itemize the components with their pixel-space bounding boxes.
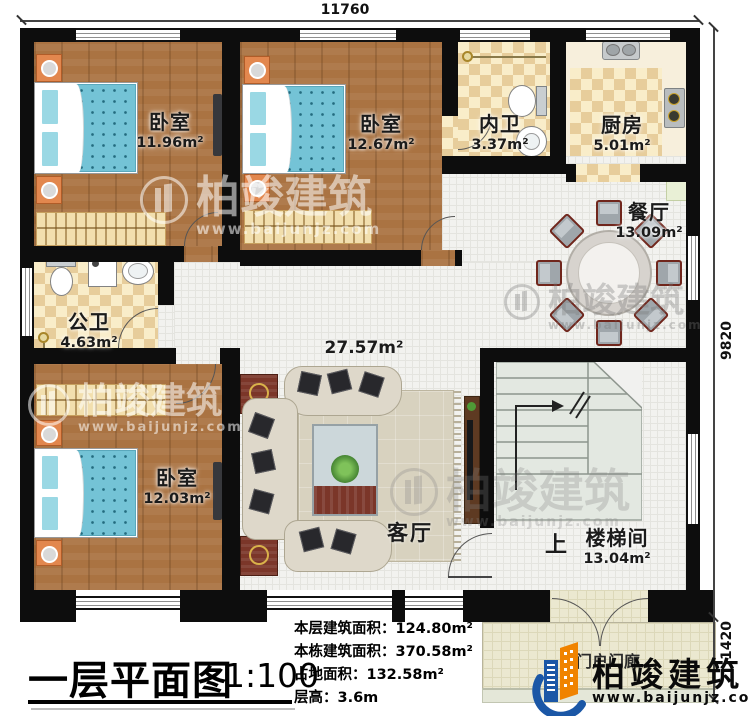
toilet <box>50 267 73 296</box>
window <box>686 434 700 524</box>
room-label-dining: 餐厅 13.09m² <box>615 196 682 241</box>
burner <box>668 110 680 122</box>
threshold-bedroom-tm <box>421 250 455 266</box>
title-underline-2 <box>31 708 295 710</box>
room-name: 公卫 <box>68 306 110 335</box>
dimension-line-top <box>20 20 700 22</box>
room-name: 餐厅 <box>628 196 670 225</box>
pillow <box>248 90 268 127</box>
dimension-top-value: 11760 <box>300 2 390 18</box>
room-area: 5.01m² <box>593 138 650 154</box>
wall <box>20 336 34 622</box>
coffee-table-wood <box>314 486 376 514</box>
wall <box>20 28 34 268</box>
wall <box>686 28 700 236</box>
dining-table-top <box>578 242 640 304</box>
room-label-stairwell: 楼梯间 13.04m² <box>583 522 650 567</box>
wall <box>218 246 240 262</box>
wall <box>455 250 462 266</box>
stat-line: 本栋建筑面积：370.58m² <box>294 641 473 664</box>
threshold-public-bath <box>158 305 174 348</box>
wall <box>566 164 576 182</box>
sink-bowl <box>622 44 636 56</box>
tv-screen <box>467 420 473 500</box>
window <box>76 596 180 610</box>
wall <box>222 28 240 250</box>
brand-website: www.baijunjz.com <box>592 690 750 706</box>
tv-panel <box>213 462 222 520</box>
window <box>586 28 670 42</box>
wall <box>640 164 686 182</box>
sofa-top <box>284 366 402 416</box>
room-name: 内卫 <box>479 108 521 137</box>
threshold-kitchen <box>576 164 640 182</box>
toilet-tank <box>536 86 547 116</box>
wall <box>480 362 494 528</box>
stairs-up-label: 上 <box>545 527 567 559</box>
nightstand <box>36 54 62 82</box>
wall <box>463 590 550 622</box>
dining-chair <box>536 260 562 286</box>
dimension-line-right <box>713 28 715 702</box>
wall <box>648 590 714 622</box>
wall <box>442 28 458 116</box>
brand-name: 柏竣建筑 <box>592 648 744 696</box>
bed-sheet <box>266 86 292 172</box>
room-area: 4.63m² <box>60 335 117 351</box>
dining-chair <box>656 260 682 286</box>
threshold-inner-bath <box>442 116 458 156</box>
room-label-kitchen: 厨房 5.01m² <box>593 109 650 154</box>
room-label-bedroom-tl: 卧室 11.96m² <box>136 106 203 151</box>
dimension-right-main-value: 9820 <box>719 300 735 360</box>
wall <box>222 348 240 590</box>
wardrobe <box>36 212 166 246</box>
nightstand <box>244 174 270 202</box>
room-name: 厨房 <box>601 109 643 138</box>
room-name: 卧室 <box>156 462 198 491</box>
room-label-public-bath: 公卫 4.63m² <box>60 306 117 351</box>
pillow <box>40 495 60 532</box>
wardrobe <box>244 210 372 244</box>
nightstand <box>36 540 62 566</box>
room-label-inner-bath: 内卫 3.37m² <box>471 108 528 153</box>
stat-line: 占地面积：132.58m² <box>294 664 473 687</box>
stat-line: 层高：3.6m <box>294 687 473 710</box>
nightstand <box>36 420 62 446</box>
room-name: 楼梯间 <box>585 522 648 551</box>
window <box>76 28 180 42</box>
burner <box>668 93 680 105</box>
living-room-name: 客厅 <box>387 517 433 547</box>
sink-bowl <box>606 44 620 56</box>
room-label-bedroom-bl: 卧室 12.03m² <box>143 462 210 507</box>
window <box>405 596 463 610</box>
title-underline <box>28 700 292 704</box>
room-name: 卧室 <box>360 108 402 137</box>
plant-small <box>467 402 476 411</box>
window <box>300 28 396 42</box>
wall <box>480 348 686 362</box>
plant <box>331 455 359 483</box>
wall <box>180 590 267 622</box>
wall <box>686 300 700 434</box>
wall <box>158 246 174 305</box>
pillow <box>248 131 268 168</box>
area-stats: 本层建筑面积：124.80m² 本栋建筑面积：370.58m² 占地面积：132… <box>294 618 473 710</box>
chaise <box>284 520 392 572</box>
floor-plan: 柏竣建筑 www.baijunjz.com 柏竣建筑 www.baijunjz.… <box>0 0 750 728</box>
room-area: 12.67m² <box>347 137 414 153</box>
wall <box>240 250 421 266</box>
window <box>686 236 700 300</box>
wall <box>550 28 566 156</box>
dining-chair <box>596 320 622 346</box>
end-table <box>240 536 278 576</box>
room-area: 11.96m² <box>136 135 203 151</box>
tv-panel <box>213 94 222 156</box>
bed-sheet <box>58 450 84 536</box>
room-area: 13.04m² <box>583 551 650 567</box>
room-area: 12.03m² <box>143 491 210 507</box>
window <box>267 596 392 610</box>
wall <box>20 590 76 622</box>
nightstand <box>36 176 62 204</box>
floor-drain <box>38 332 49 343</box>
towel-bar <box>470 56 546 58</box>
plan-title: 一层平面图 <box>28 648 233 706</box>
window <box>460 28 530 42</box>
wall <box>180 28 300 42</box>
bed-sheet <box>58 84 84 172</box>
room-name: 卧室 <box>149 106 191 135</box>
sink-basin <box>128 263 148 279</box>
pillow <box>40 130 60 168</box>
sofa-left <box>242 398 298 540</box>
brand-logo-icon <box>532 638 590 716</box>
room-area: 13.09m² <box>615 225 682 241</box>
wardrobe <box>36 384 166 416</box>
nightstand <box>244 56 270 84</box>
room-label-bedroom-tm: 卧室 12.67m² <box>347 108 414 153</box>
stat-line: 本层建筑面积：124.80m² <box>294 618 473 641</box>
towel-hook <box>462 51 473 62</box>
staircase <box>496 362 642 522</box>
living-area-value: 27.57m² <box>325 338 404 358</box>
threshold-bedroom-tl <box>184 246 218 262</box>
pillow <box>40 88 60 126</box>
pillow <box>40 454 60 491</box>
door-leaf-stairwell <box>448 576 492 578</box>
wall <box>442 156 566 174</box>
room-area: 3.37m² <box>471 137 528 153</box>
window <box>20 268 34 336</box>
